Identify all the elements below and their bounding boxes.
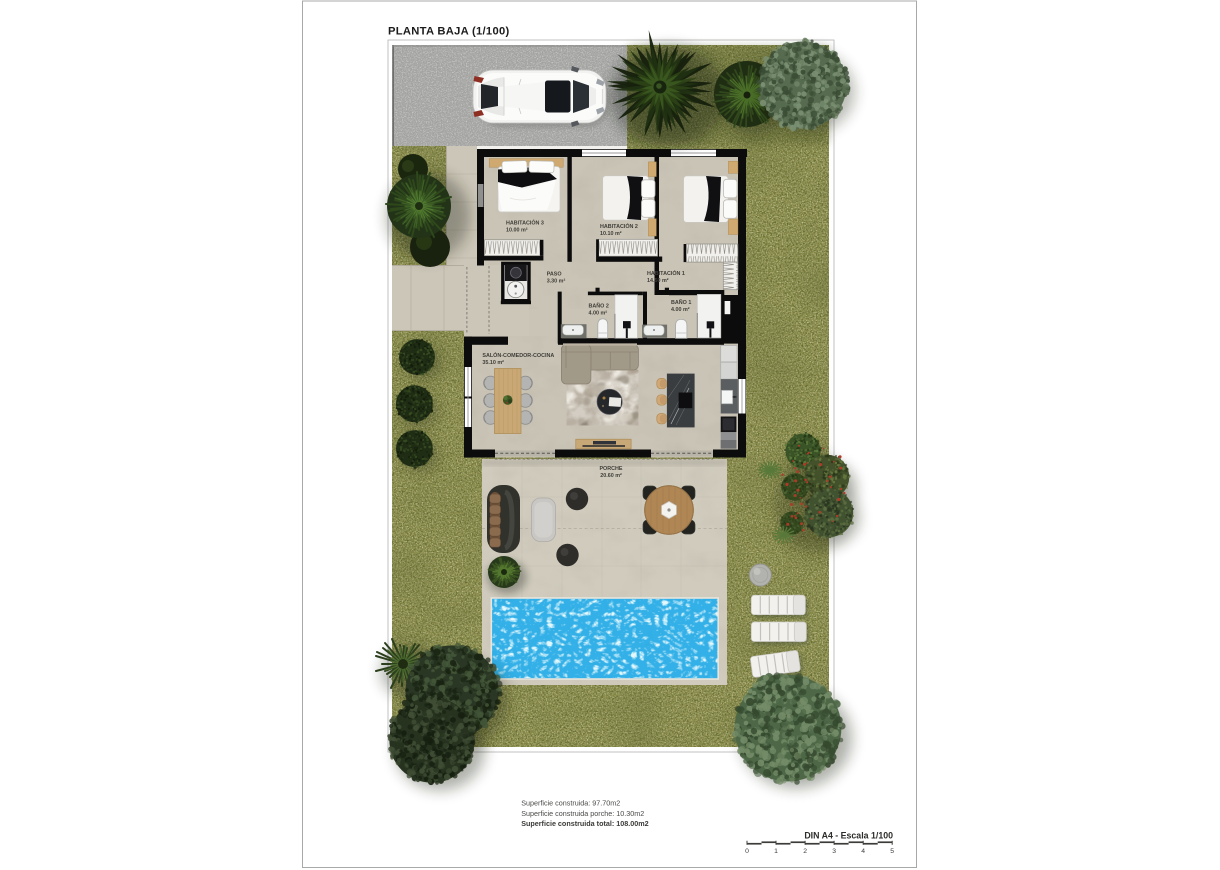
svg-text:HABITACIÓN 1: HABITACIÓN 1 xyxy=(647,269,685,277)
svg-text:PORCHE: PORCHE xyxy=(599,466,622,472)
svg-text:HABITACIÓN 2: HABITACIÓN 2 xyxy=(600,222,638,230)
svg-text:HABITACIÓN 3: HABITACIÓN 3 xyxy=(506,219,544,227)
svg-text:10.00 m²: 10.00 m² xyxy=(506,228,528,234)
svg-text:0: 0 xyxy=(745,848,749,855)
svg-text:PASO: PASO xyxy=(547,272,562,278)
svg-text:Superficie construida: 97.70m2: Superficie construida: 97.70m2 xyxy=(521,799,620,808)
svg-text:14.50 m²: 14.50 m² xyxy=(647,278,669,284)
svg-text:BAÑO 2: BAÑO 2 xyxy=(589,303,609,310)
svg-text:4.00 m²: 4.00 m² xyxy=(671,307,690,313)
svg-text:Superficie construida porche:: Superficie construida porche: 10.30m2 xyxy=(521,809,644,818)
svg-text:SALÓN-COMEDOR-COCINA: SALÓN-COMEDOR-COCINA xyxy=(482,351,554,359)
svg-text:35.10 m²: 35.10 m² xyxy=(482,360,504,366)
svg-text:4: 4 xyxy=(861,848,865,855)
svg-text:PLANTA BAJA (1/100): PLANTA BAJA (1/100) xyxy=(388,26,510,38)
svg-text:3: 3 xyxy=(832,848,836,855)
svg-text:20.60 m²: 20.60 m² xyxy=(600,473,622,479)
svg-text:DIN A4 - Escala 1/100: DIN A4 - Escala 1/100 xyxy=(804,831,893,841)
svg-text:4.00 m²: 4.00 m² xyxy=(589,311,608,317)
svg-text:1: 1 xyxy=(774,848,778,855)
svg-text:3.30 m²: 3.30 m² xyxy=(547,279,566,285)
svg-text:2: 2 xyxy=(803,848,807,855)
svg-text:5: 5 xyxy=(890,848,894,855)
svg-text:10.10 m²: 10.10 m² xyxy=(600,231,622,237)
svg-text:Superficie construida total: 1: Superficie construida total: 108.00m2 xyxy=(521,819,648,828)
svg-text:BAÑO 1: BAÑO 1 xyxy=(671,299,691,306)
